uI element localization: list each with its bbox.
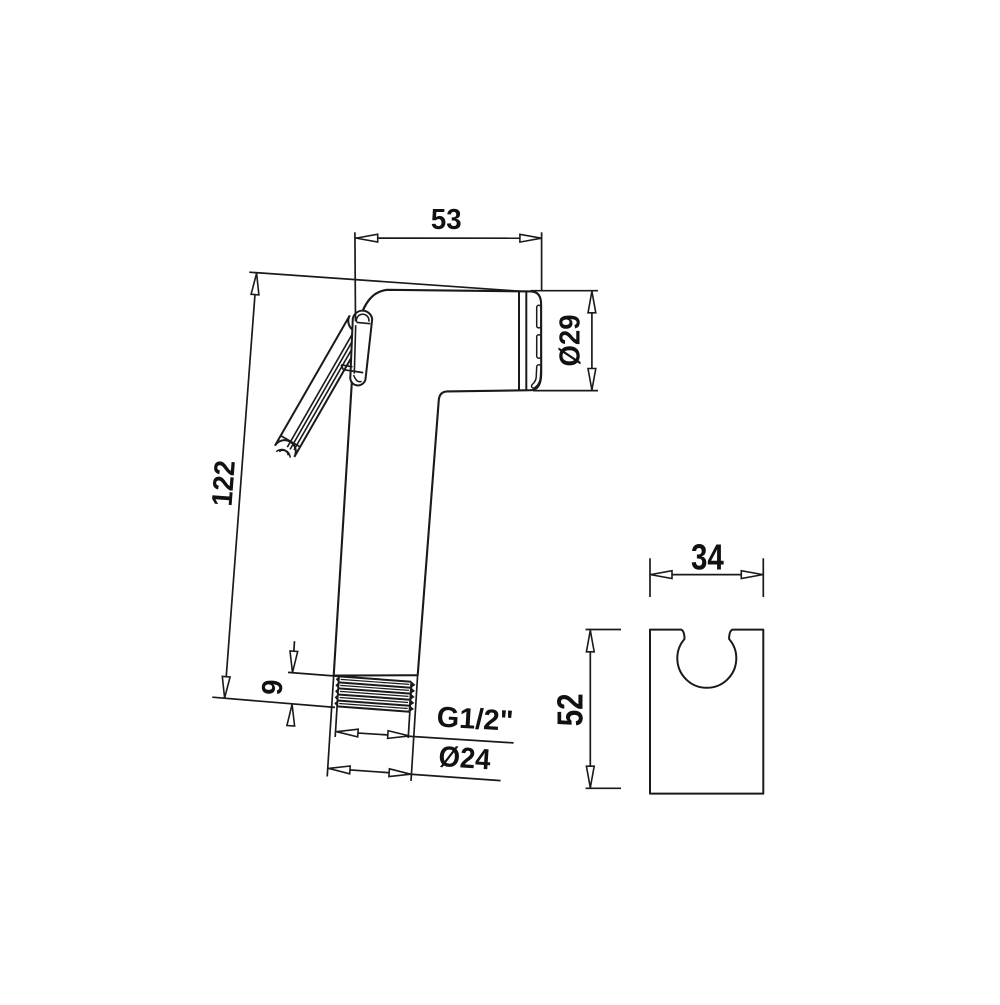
svg-text:122: 122 (205, 459, 241, 507)
svg-text:Ø29: Ø29 (553, 314, 586, 366)
svg-text:53: 53 (431, 202, 462, 235)
svg-text:Ø24: Ø24 (438, 739, 492, 775)
svg-text:9: 9 (255, 678, 289, 696)
svg-text:52: 52 (550, 693, 590, 726)
svg-text:34: 34 (691, 536, 724, 576)
svg-text:G1/2": G1/2" (436, 701, 514, 737)
